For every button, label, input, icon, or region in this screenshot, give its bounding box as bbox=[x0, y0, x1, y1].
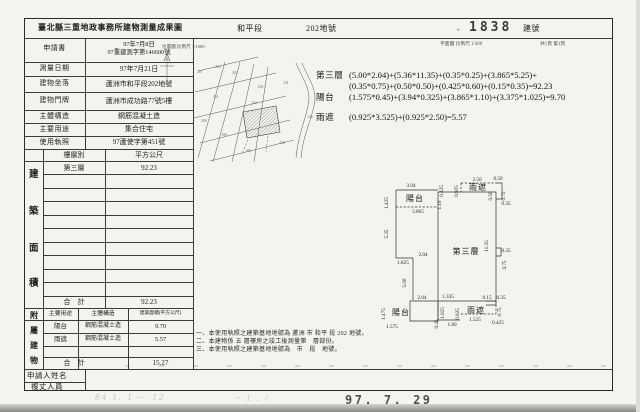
formula-text: (5.00*2.04)+(5.36*11.35)+(0.35*0.25)+(3.… bbox=[349, 70, 552, 91]
annex-row-area: 9.70 bbox=[128, 323, 193, 330]
scan-right-edge bbox=[636, 0, 640, 412]
plan-dimension-label: 0.75 bbox=[497, 307, 503, 316]
area-vertical-label-char: 積 bbox=[29, 275, 39, 289]
formula-third-floor: 第三層 (5.00*2.04)+(5.36*11.35)+(0.35*0.25)… bbox=[316, 70, 616, 91]
area-row-floor: 第三層 bbox=[43, 164, 105, 172]
plan-dimension-label: 5.00 bbox=[402, 278, 408, 287]
rule-line bbox=[43, 215, 193, 216]
rule-line bbox=[43, 296, 193, 297]
plan-dimension-label: 0.925 bbox=[454, 185, 460, 197]
location-scale-label: 位置圖 比例尺 1/1000 bbox=[162, 43, 205, 50]
note-line-2: 二、本建物係 五 層樓房之竣工後測量第 層部份。 bbox=[196, 339, 338, 346]
plan-dimension-label: 1.025 bbox=[440, 307, 446, 319]
area-vertical-label-char: 建 bbox=[29, 166, 39, 180]
land-section-name: 和平段 bbox=[237, 24, 263, 33]
plan-dimension-room-label: 陽台 bbox=[406, 193, 424, 203]
plan-dimension-label: 0.425 bbox=[492, 320, 504, 326]
surveyor-label: 複丈人員 bbox=[31, 383, 63, 392]
map-lot-number-label: 198 bbox=[221, 133, 227, 137]
rule-line bbox=[43, 242, 193, 243]
rule-line bbox=[24, 38, 613, 39]
page-count-label: 共1頁 第1頁 bbox=[540, 42, 565, 48]
annex-vertical-label-char: 建 bbox=[30, 340, 38, 351]
plan-dimension-label: 0.15 bbox=[482, 295, 491, 301]
formula-label: 第三層 bbox=[316, 70, 349, 91]
map-lot-number-label: 203-1 bbox=[258, 85, 267, 89]
faint-signature-marks bbox=[125, 365, 610, 367]
building-number-label: 建號 bbox=[523, 24, 540, 33]
formula-balcony: 陽台 (1.575*0.45)+(3.94*0.325)+(3.865*1.10… bbox=[316, 92, 616, 103]
rule-line bbox=[24, 369, 613, 370]
map-lot-number-label: 207 bbox=[197, 70, 203, 74]
annex-row-structure: 鋼筋混凝土造 bbox=[78, 336, 128, 343]
plan-dimension-label: 1.335 bbox=[442, 294, 454, 300]
rule-line bbox=[43, 201, 193, 202]
plan-dimension-label: 1.525 bbox=[469, 317, 481, 323]
map-lot-number-label: 142 bbox=[307, 115, 313, 119]
annex-vertical-label-char: 物 bbox=[30, 355, 38, 366]
annex-vertical-label-char: 屬 bbox=[30, 325, 38, 336]
rule-line bbox=[43, 346, 193, 347]
plan-dimension-label: 0.50 bbox=[488, 191, 494, 200]
rule-line bbox=[43, 188, 193, 189]
plan-dimension-label: 1.825 bbox=[397, 260, 409, 266]
building-number: 1838 bbox=[469, 21, 512, 36]
plan-dimension-label: 0.325 bbox=[439, 185, 445, 197]
plan-dimension-label: 0.75 bbox=[502, 260, 508, 269]
info-label-survey-date: 測量日期 bbox=[26, 64, 83, 72]
pencil-note-middle: ~ 1 . / bbox=[235, 393, 270, 403]
pencil-note-left: 84 1. 1 — 12 bbox=[95, 392, 165, 402]
area-col-floor: 樓層別 bbox=[43, 151, 105, 159]
note-line-1: 一、本使用執照之建築基地地號為 蘆洲 市 和平 段 202 地號。 bbox=[196, 331, 368, 338]
rule-line bbox=[43, 269, 193, 270]
plan-dimension-label: 3.865 bbox=[412, 209, 424, 215]
annex-row-area: 5.57 bbox=[128, 336, 193, 343]
info-label-use-permit: 使用執照 bbox=[26, 138, 83, 146]
map-lot-number-label: 241 bbox=[283, 81, 289, 85]
area-vertical-label-char: 築 bbox=[29, 203, 39, 217]
plan-dimension-room-label: 雨遮 bbox=[467, 305, 485, 315]
rule-line bbox=[24, 320, 193, 321]
plan-dimension-label: 0.45 bbox=[434, 319, 440, 328]
rule-line bbox=[85, 369, 86, 391]
plan-dimension-room-label: 第三層 bbox=[453, 246, 480, 256]
area-row-value: 92.23 bbox=[105, 164, 193, 172]
annex-row-use: 陽台 bbox=[43, 323, 78, 330]
map-lot-number-label: 201 bbox=[213, 95, 219, 99]
map-lot-number-label: 199 bbox=[245, 149, 251, 153]
plan-dimension-label: 3.94 bbox=[406, 183, 415, 189]
rule-line bbox=[43, 333, 193, 334]
plan-dimension-room-label: 雨遮 bbox=[469, 182, 487, 192]
north-arrow-icon bbox=[160, 53, 174, 82]
building-number-dash: - bbox=[457, 25, 460, 34]
plan-dimension-label: 0.75 bbox=[501, 191, 507, 200]
lot-number: 202地號 bbox=[306, 24, 337, 33]
scanned-building-survey-document: 臺北縣三重地政事務所建物測量成果圖 和平段 202地號 - 1838 建號 平面… bbox=[0, 0, 640, 412]
rule-line bbox=[43, 282, 193, 283]
formula-rain-shield: 雨遮 (0.925*3.525)+(0.925*2.50)=5.57 bbox=[316, 112, 616, 123]
info-label-application: 申請書 bbox=[26, 44, 83, 52]
subject-building-hatched bbox=[243, 106, 280, 138]
map-lot-number-label: 200 bbox=[201, 119, 207, 123]
rule-line bbox=[43, 174, 193, 175]
plan-dimension-label: 0.35 bbox=[496, 295, 505, 301]
applicant-name-label: 申請人姓名 bbox=[27, 372, 67, 381]
plan-dimension-label: 0.925 bbox=[455, 308, 461, 320]
info-label-structure: 主體構造 bbox=[26, 112, 83, 120]
map-lot-number-label: 202 bbox=[251, 101, 257, 105]
note-line-3: 三、本使用執照之建築基地地號為 市 段 地號。 bbox=[196, 347, 341, 354]
rule-line bbox=[43, 228, 193, 229]
map-lot-number-label: 240 bbox=[279, 141, 285, 145]
plan-dimension-label: 0.35 bbox=[501, 201, 510, 207]
plan-dimension-label: 2.04 bbox=[417, 295, 426, 301]
info-label-main-use: 主要用途 bbox=[26, 125, 83, 133]
annex-total-label: 合 計 bbox=[43, 359, 105, 367]
rule-line bbox=[43, 255, 193, 256]
floor-plan-drawing: 3.941.425陽台0.3250.9252.500.50雨遮0.500.750… bbox=[368, 148, 523, 343]
plan-dimension-label: 5.25 bbox=[384, 229, 390, 238]
annex-col-use: 主要用途 bbox=[43, 311, 78, 318]
info-label-building-site: 建物坐落 bbox=[26, 79, 83, 87]
map-lot-number-label: 203 bbox=[232, 71, 238, 75]
annex-row-structure: 鋼筋混凝土造 bbox=[78, 323, 128, 330]
area-total-label: 合 計 bbox=[43, 298, 105, 306]
plan-dimension-label: 1.475 bbox=[381, 308, 387, 320]
annex-vertical-label-char: 附 bbox=[30, 310, 38, 321]
map-lot-number-label: 204 bbox=[215, 65, 221, 69]
info-label-address: 建物門牌 bbox=[26, 96, 83, 104]
area-total-value: 92.23 bbox=[105, 298, 193, 306]
plan-scale-label: 平面圖 比例尺 1/300 bbox=[440, 42, 482, 48]
formula-label: 陽台 bbox=[316, 92, 349, 103]
annex-row-use: 雨遮 bbox=[43, 336, 78, 343]
area-vertical-label-char: 面 bbox=[29, 240, 39, 254]
rule-line bbox=[43, 357, 193, 358]
formula-label: 雨遮 bbox=[316, 112, 349, 123]
annex-col-structure: 主體構造 bbox=[78, 311, 128, 318]
plan-dimension-label: 2.04 bbox=[418, 252, 427, 258]
rule-line bbox=[24, 308, 193, 309]
plan-dimension-label: 1.80 bbox=[447, 322, 456, 328]
plan-dimension-label: 0.35 bbox=[501, 248, 510, 254]
plan-dimension-label: 11.35 bbox=[484, 240, 490, 252]
formula-text: (0.925*3.525)+(0.925*2.50)=5.57 bbox=[349, 112, 467, 123]
location-sketch-map: 位置圖 比例尺 1/1000 207204203203-120220120019… bbox=[150, 40, 340, 162]
annex-col-area: 建築面積(平方公尺) bbox=[128, 311, 193, 317]
cadastral-lot-lines bbox=[194, 57, 315, 162]
area-calculation-formulas: 第三層 (5.00*2.04)+(5.36*11.35)+(0.35*0.25)… bbox=[316, 70, 616, 123]
plan-dimension-label: 0.50 bbox=[493, 176, 502, 182]
rule-line bbox=[105, 149, 106, 308]
plan-dimension-label: 1.10 bbox=[437, 200, 443, 209]
plan-dimension-label: 1.425 bbox=[384, 197, 390, 209]
formula-text: (1.575*0.45)+(3.94*0.325)+(3.865*1.10)+(… bbox=[349, 92, 565, 103]
plan-dimension-label: 1.575 bbox=[386, 324, 398, 330]
document-title: 臺北縣三重地政事務所建物測量成果圖 bbox=[38, 23, 183, 32]
scan-bottom-shadow bbox=[0, 404, 640, 412]
plan-dimension-room-label: 陽台 bbox=[392, 307, 410, 317]
